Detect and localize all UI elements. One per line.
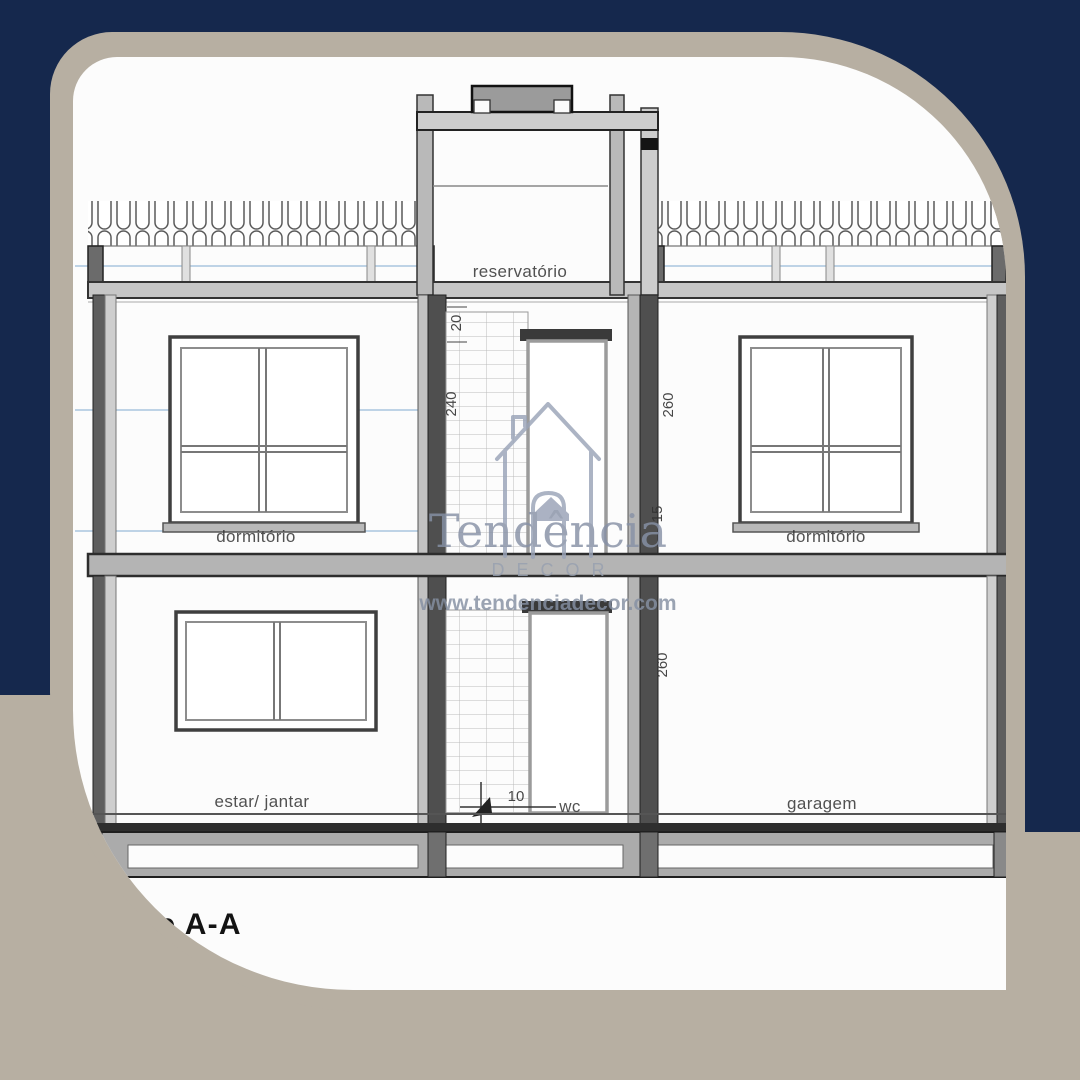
living-window [176, 612, 376, 730]
dim-260-lower: 260 [654, 652, 671, 677]
dim-20: 20 [448, 315, 465, 332]
brand-subtitle: DECOR [491, 560, 616, 580]
poster-canvas: reservatório [0, 0, 1080, 1080]
dim-240: 240 [443, 391, 460, 416]
brand-text: Tendência [429, 504, 667, 558]
bedroom-label-right: dormitório [786, 527, 866, 546]
living-label: estar/ jantar [215, 792, 310, 811]
bedroom-window-left [163, 337, 365, 532]
drawing-card: reservatório [73, 57, 1006, 990]
ground-beam [85, 823, 1006, 832]
roof-slab [88, 282, 1006, 302]
section-drawing-svg: reservatório [73, 57, 1006, 990]
bedroom-window-right [733, 337, 919, 532]
dim-260-upper: 260 [660, 392, 677, 417]
stair-door-lower [530, 613, 607, 813]
dim-10: 10 [508, 788, 525, 805]
stair-lintel-upper [520, 329, 612, 341]
stair-tiles-lower [446, 610, 530, 813]
garage-label: garagem [787, 794, 857, 813]
bedroom-label-left: dormitório [216, 527, 296, 546]
brand-website: www.tendenciadecor.com [418, 592, 676, 615]
foundation [88, 832, 1006, 877]
tank-label: reservatório [473, 262, 568, 281]
